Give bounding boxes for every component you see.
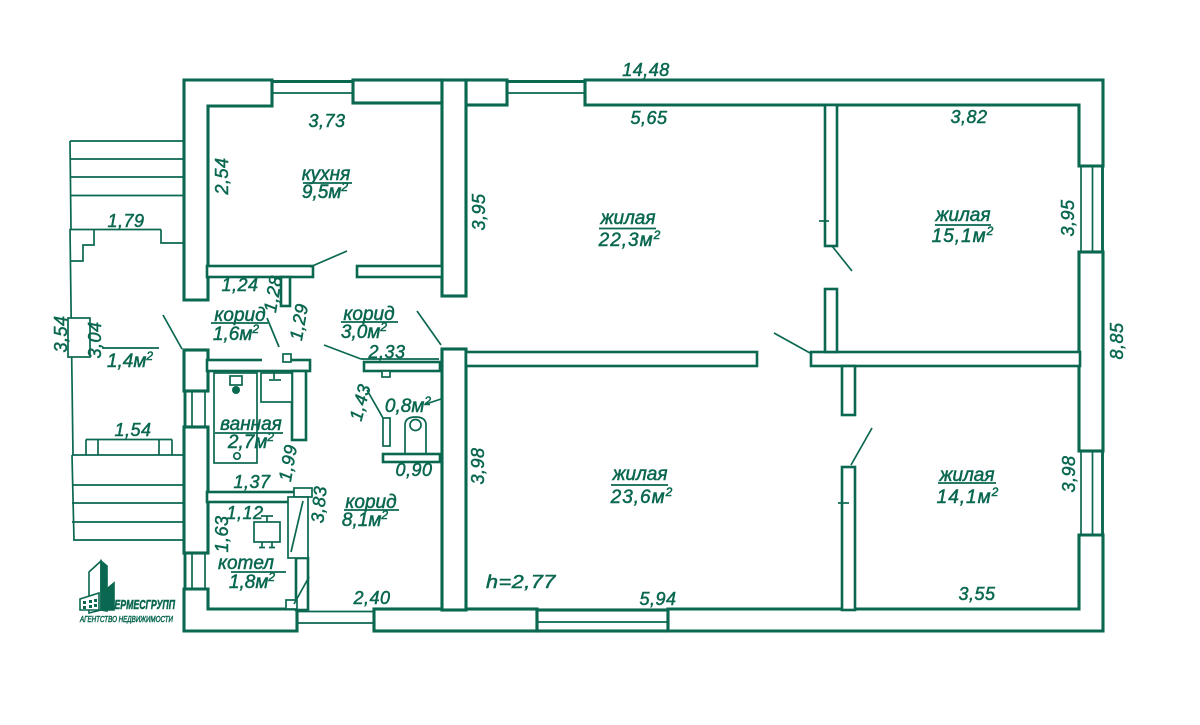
svg-text:2,33: 2,33: [367, 342, 405, 362]
svg-text:АГЕНТСТВО НЕДВИЖИМОСТИ: АГЕНТСТВО НЕДВИЖИМОСТИ: [79, 614, 173, 624]
svg-text:3,55: 3,55: [958, 584, 996, 604]
svg-text:3,95: 3,95: [1058, 199, 1078, 237]
svg-text:3,83: 3,83: [307, 485, 330, 524]
svg-text:2,54: 2,54: [212, 157, 232, 195]
svg-text:ГЕРМЕСГРУПП: ГЕРМЕСГРУПП: [109, 598, 176, 612]
svg-text:2,7м2: 2,7м2: [227, 430, 274, 453]
svg-text:жилая: жилая: [934, 205, 990, 226]
svg-text:1,54: 1,54: [114, 420, 151, 440]
svg-text:5,65: 5,65: [630, 108, 668, 128]
svg-text:15,1м2: 15,1м2: [932, 224, 995, 247]
svg-text:22,3м2: 22,3м2: [598, 228, 662, 251]
svg-text:14,48: 14,48: [622, 60, 670, 80]
svg-text:3,73: 3,73: [308, 111, 345, 131]
svg-text:14,1м2: 14,1м2: [937, 485, 1000, 508]
svg-text:8,85: 8,85: [1107, 322, 1127, 360]
svg-text:3,98: 3,98: [468, 447, 488, 484]
svg-text:3,95: 3,95: [469, 193, 489, 231]
svg-text:котел: котел: [218, 553, 274, 574]
svg-text:1,79: 1,79: [107, 211, 144, 231]
svg-text:1,12: 1,12: [226, 503, 263, 523]
svg-text:5,94: 5,94: [639, 589, 676, 609]
svg-text:3,04: 3,04: [85, 321, 105, 358]
svg-text:3,54: 3,54: [51, 315, 71, 352]
svg-text:3,98: 3,98: [1059, 455, 1079, 492]
svg-text:h=2,77: h=2,77: [486, 572, 557, 592]
svg-text:1,24: 1,24: [221, 275, 258, 295]
svg-text:жилая: жилая: [611, 464, 667, 485]
svg-text:2,40: 2,40: [352, 588, 390, 608]
svg-text:1,37: 1,37: [233, 472, 271, 492]
svg-text:23,6м2: 23,6м2: [610, 485, 674, 508]
svg-text:1,63: 1,63: [212, 515, 232, 552]
svg-text:3,82: 3,82: [950, 107, 987, 127]
svg-text:жилая: жилая: [599, 208, 655, 229]
svg-text:0,90: 0,90: [395, 460, 432, 480]
